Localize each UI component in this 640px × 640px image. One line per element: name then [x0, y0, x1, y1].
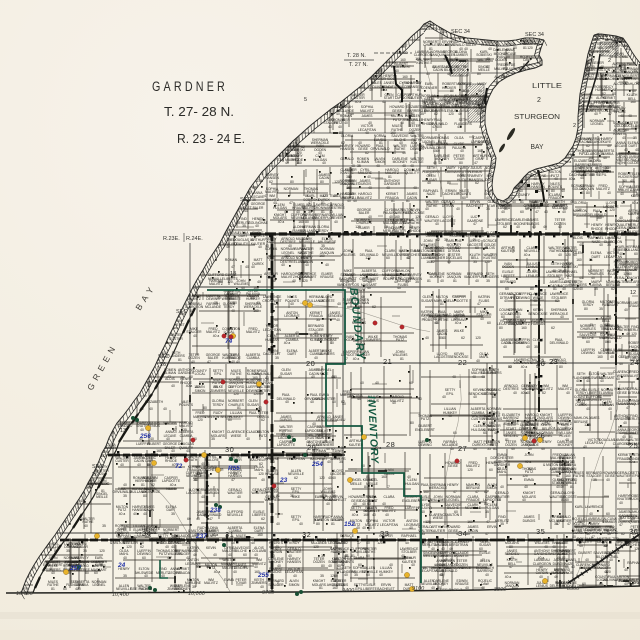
svg-text:ZIMMERS: ZIMMERS: [486, 371, 502, 375]
svg-text:HANSEN: HANSEN: [287, 560, 301, 564]
svg-text:81: 81: [237, 406, 241, 410]
svg-text:T. 27 N.: T. 27 N.: [349, 62, 368, 68]
svg-text:40: 40: [385, 513, 389, 517]
svg-text:35: 35: [420, 112, 424, 116]
svg-text:40: 40: [386, 186, 390, 190]
svg-text:RATHE: RATHE: [189, 458, 201, 462]
svg-text:80: 80: [586, 191, 590, 195]
svg-text:40: 40: [143, 512, 147, 516]
svg-text:PUTZ: PUTZ: [490, 443, 499, 447]
svg-text:40: 40: [457, 125, 461, 129]
svg-text:NILES: NILES: [166, 487, 176, 491]
svg-text:40: 40: [458, 112, 462, 116]
svg-text:40: 40: [328, 440, 332, 444]
svg-text:NAZE: NAZE: [566, 274, 576, 278]
svg-text:ZIMMERS: ZIMMERS: [210, 389, 226, 393]
svg-text:120: 120: [99, 549, 105, 553]
svg-text:EPIL: EPIL: [214, 372, 221, 376]
svg-text:40: 40: [606, 478, 610, 482]
svg-text:40: 40: [366, 541, 370, 545]
svg-text:2: 2: [537, 97, 541, 104]
svg-text:SEC: SEC: [92, 464, 103, 470]
svg-text:40: 40: [460, 149, 464, 153]
svg-text:81: 81: [553, 287, 557, 291]
svg-text:40: 40: [560, 485, 564, 489]
svg-text:MALVITZ: MALVITZ: [360, 109, 374, 113]
svg-text:81: 81: [391, 199, 395, 203]
svg-text:40: 40: [494, 431, 498, 435]
svg-text:35: 35: [354, 573, 358, 577]
svg-text:SEC 34: SEC 34: [451, 29, 470, 35]
svg-text:R. 23 - 24 E.: R. 23 - 24 E.: [177, 131, 245, 146]
svg-text:GOLDE: GOLDE: [627, 161, 639, 165]
svg-text:DESTREE: DESTREE: [503, 387, 519, 391]
svg-text:40: 40: [594, 112, 598, 116]
svg-text:EPIL: EPIL: [599, 173, 606, 177]
svg-text:40: 40: [452, 375, 456, 379]
svg-text:40: 40: [473, 395, 477, 399]
svg-text:ROMAN: ROMAN: [225, 258, 238, 262]
svg-text:62: 62: [269, 180, 273, 184]
svg-text:47: 47: [407, 256, 411, 260]
svg-text:40: 40: [532, 225, 536, 229]
svg-text:SEC 34: SEC 34: [525, 32, 544, 38]
svg-text:40: 40: [451, 222, 455, 226]
svg-text:160: 160: [630, 100, 636, 104]
svg-text:DEWING: DEWING: [516, 296, 530, 300]
svg-text:LENIUS: LENIUS: [526, 274, 539, 278]
svg-text:26: 26: [160, 362, 166, 368]
svg-text:40: 40: [193, 334, 197, 338]
svg-text:MALVITZ: MALVITZ: [204, 581, 218, 585]
svg-text:LAPIDOTTE: LAPIDOTTE: [450, 299, 469, 303]
svg-text:81: 81: [406, 199, 410, 203]
svg-text:40: 40: [501, 210, 505, 214]
svg-text:LACOSTE: LACOSTE: [561, 495, 577, 499]
svg-text:RUTHE: RUTHE: [573, 474, 585, 478]
svg-text:160: 160: [423, 490, 429, 494]
svg-text:LEONEL: LEONEL: [590, 122, 603, 126]
svg-text:62: 62: [461, 336, 465, 340]
svg-text:40: 40: [541, 447, 545, 451]
svg-text:SUGAR: SUGAR: [280, 372, 292, 376]
svg-text:40 a: 40 a: [381, 88, 388, 92]
svg-text:40: 40: [246, 437, 250, 441]
svg-text:40: 40: [274, 318, 278, 322]
svg-text:GEISE: GEISE: [448, 464, 459, 468]
svg-text:40: 40: [554, 575, 558, 579]
svg-text:30: 30: [225, 445, 234, 454]
svg-text:KRAUSE: KRAUSE: [628, 304, 640, 308]
svg-text:40: 40: [123, 556, 127, 560]
svg-text:40: 40: [625, 128, 629, 132]
svg-text:35: 35: [242, 224, 246, 228]
svg-text:60: 60: [462, 196, 466, 200]
svg-text:35: 35: [500, 522, 504, 526]
svg-text:GLORIA: GLORIA: [574, 201, 587, 205]
svg-text:81: 81: [147, 463, 151, 467]
svg-text:40: 40: [556, 485, 560, 489]
svg-text:40: 40: [260, 585, 264, 589]
svg-text:120: 120: [313, 545, 319, 549]
svg-text:26: 26: [536, 359, 545, 368]
svg-text:40: 40: [163, 407, 167, 411]
svg-text:40: 40: [425, 336, 429, 340]
svg-text:2: 2: [573, 123, 576, 129]
svg-text:40: 40: [579, 243, 583, 247]
svg-text:ELMER: ELMER: [358, 226, 370, 230]
svg-text:62: 62: [503, 225, 507, 229]
svg-text:40: 40: [620, 114, 624, 118]
svg-text:DEWING: DEWING: [581, 351, 595, 355]
svg-text:FLANDERS: FLANDERS: [167, 354, 185, 358]
svg-text:35: 35: [487, 447, 491, 451]
svg-text:160: 160: [467, 520, 473, 524]
svg-text:DITRAN: DITRAN: [442, 204, 455, 208]
svg-text:KAUTIER: KAUTIER: [408, 96, 423, 100]
svg-text:40: 40: [440, 279, 444, 283]
svg-text:40: 40: [228, 553, 232, 557]
svg-text:40: 40: [524, 485, 528, 489]
svg-text:SENDIEU: SENDIEU: [331, 418, 346, 422]
svg-text:40: 40: [231, 309, 235, 313]
svg-text:40: 40: [338, 125, 342, 129]
svg-text:TOVAR: TOVAR: [235, 581, 247, 585]
svg-text:40: 40: [586, 379, 590, 383]
svg-text:CLARA: CLARA: [384, 495, 396, 499]
svg-text:40 a: 40 a: [524, 253, 531, 257]
svg-text:28: 28: [386, 440, 395, 449]
svg-text:RAPHAEL: RAPHAEL: [401, 534, 417, 538]
svg-text:80: 80: [316, 522, 320, 526]
svg-text:T. 27- 28 N.: T. 27- 28 N.: [164, 104, 234, 119]
svg-text:LECAPITAN: LECAPITAN: [380, 523, 399, 527]
svg-text:80: 80: [459, 161, 463, 165]
svg-text:40: 40: [299, 522, 303, 526]
svg-text:40: 40: [522, 498, 526, 502]
svg-text:WIESE: WIESE: [433, 516, 444, 520]
svg-text:PUTZ: PUTZ: [159, 552, 168, 556]
svg-text:LACOSTE: LACOSTE: [319, 299, 335, 303]
svg-text:CUMBIA: CUMBIA: [180, 434, 194, 438]
svg-text:MALVITZ: MALVITZ: [358, 196, 372, 200]
svg-text:ORVILWALD: ORVILWALD: [254, 372, 274, 376]
svg-text:40: 40: [285, 161, 289, 165]
svg-text:40: 40: [427, 181, 431, 185]
svg-text:40: 40: [561, 189, 565, 193]
svg-text:40: 40: [328, 564, 332, 568]
svg-text:81: 81: [523, 46, 527, 50]
svg-text:60: 60: [606, 512, 610, 516]
svg-text:34: 34: [458, 529, 467, 538]
svg-text:81: 81: [453, 279, 457, 283]
svg-text:40: 40: [376, 164, 380, 168]
svg-text:40: 40: [340, 446, 344, 450]
svg-text:81: 81: [178, 358, 182, 362]
svg-text:40: 40: [560, 315, 564, 319]
svg-text:40: 40: [133, 512, 137, 516]
svg-text:47: 47: [207, 360, 211, 364]
svg-text:40: 40: [322, 161, 326, 165]
svg-text:62: 62: [542, 391, 546, 395]
svg-text:47: 47: [473, 222, 477, 226]
svg-text:FRAUDE: FRAUDE: [466, 498, 480, 502]
svg-text:GILBERT: GILBERT: [147, 442, 161, 446]
svg-text:160: 160: [319, 254, 325, 258]
svg-text:60: 60: [409, 381, 413, 385]
svg-text:40: 40: [539, 575, 543, 579]
svg-text:35: 35: [594, 287, 598, 291]
svg-text:40: 40: [367, 286, 371, 290]
svg-text:160: 160: [253, 309, 259, 313]
svg-text:60: 60: [492, 395, 496, 399]
svg-text:40: 40: [448, 414, 452, 418]
svg-text:80: 80: [305, 220, 309, 224]
svg-text:JAMES: JAMES: [362, 114, 374, 118]
svg-text:35: 35: [587, 423, 591, 427]
svg-text:120: 120: [484, 260, 490, 264]
svg-text:40: 40: [500, 485, 504, 489]
svg-text:60: 60: [386, 256, 390, 260]
svg-text:80: 80: [203, 406, 207, 410]
svg-text:SUGAR: SUGAR: [421, 299, 433, 303]
svg-text:40: 40: [254, 565, 258, 569]
svg-text:80: 80: [410, 421, 414, 425]
svg-text:35: 35: [275, 356, 279, 360]
svg-text:PUTZ: PUTZ: [396, 338, 405, 342]
svg-text:40: 40: [372, 513, 376, 517]
svg-text:MAHLON: MAHLON: [625, 82, 640, 86]
svg-text:60: 60: [634, 252, 638, 256]
svg-text:40: 40: [628, 114, 632, 118]
svg-text:160: 160: [296, 161, 302, 165]
svg-text:ZIMMERS: ZIMMERS: [430, 109, 446, 113]
svg-text:120: 120: [377, 541, 383, 545]
svg-text:40: 40: [375, 381, 379, 385]
svg-text:KRAUSE: KRAUSE: [320, 275, 334, 279]
svg-text:35: 35: [102, 524, 106, 528]
svg-text:47: 47: [477, 302, 481, 306]
svg-text:LEONEL: LEONEL: [92, 583, 105, 587]
svg-text:60: 60: [505, 287, 509, 291]
svg-text:120: 120: [475, 336, 481, 340]
svg-text:160: 160: [576, 258, 582, 262]
svg-text:60: 60: [243, 553, 247, 557]
svg-text:40: 40: [233, 570, 237, 574]
svg-text:40 a: 40 a: [214, 570, 221, 574]
svg-text:40: 40: [213, 553, 217, 557]
svg-text:40: 40: [583, 445, 587, 449]
svg-text:WALTER: WALTER: [163, 421, 177, 425]
svg-text:WILKE: WILKE: [454, 329, 465, 333]
svg-text:81: 81: [581, 191, 585, 195]
svg-text:40: 40: [137, 463, 141, 467]
svg-text:40 a: 40 a: [505, 575, 512, 579]
svg-text:EMMA: EMMA: [524, 478, 535, 482]
svg-text:40: 40: [623, 179, 627, 183]
svg-text:23: 23: [549, 357, 558, 366]
svg-text:40: 40: [475, 279, 479, 283]
svg-text:31: 31: [225, 530, 234, 539]
svg-text:40: 40: [619, 252, 623, 256]
svg-text:OLGA: OLGA: [454, 136, 464, 140]
svg-text:40: 40: [84, 524, 88, 528]
svg-text:40 a: 40 a: [352, 513, 359, 517]
svg-text:LACOSTE: LACOSTE: [434, 355, 450, 359]
svg-text:33: 33: [380, 529, 389, 538]
svg-text:MALVITZ: MALVITZ: [390, 399, 404, 403]
svg-text:62: 62: [431, 260, 435, 264]
svg-text:80: 80: [477, 72, 481, 76]
svg-text:80: 80: [447, 181, 451, 185]
svg-text:62: 62: [261, 517, 265, 521]
svg-text:40: 40: [186, 449, 190, 453]
svg-text:40: 40: [562, 210, 566, 214]
svg-text:MIKE: MIKE: [292, 495, 301, 499]
svg-text:40: 40: [369, 88, 373, 92]
svg-text:40: 40: [344, 573, 348, 577]
svg-text:40: 40: [576, 379, 580, 383]
svg-text:47: 47: [453, 490, 457, 494]
svg-text:120: 120: [609, 208, 615, 212]
svg-text:40: 40: [562, 287, 566, 291]
svg-text:120: 120: [233, 392, 239, 396]
svg-text:81: 81: [440, 302, 444, 306]
svg-text:GILBERT: GILBERT: [578, 551, 592, 555]
svg-text:BERNARD: BERNARD: [500, 280, 517, 284]
svg-text:SETTY: SETTY: [351, 506, 362, 510]
svg-text:40: 40: [503, 345, 507, 349]
svg-text:JAMES: JAMES: [589, 416, 601, 420]
svg-text:21: 21: [383, 357, 392, 366]
svg-text:TERDY: TERDY: [212, 403, 224, 407]
svg-text:36: 36: [629, 527, 638, 536]
svg-text:ZIMMERS: ZIMMERS: [319, 352, 335, 356]
svg-text:GERALD: GERALD: [340, 157, 354, 161]
svg-text:40 a: 40 a: [119, 512, 126, 516]
svg-text:40: 40: [609, 558, 613, 562]
svg-text:35: 35: [415, 280, 419, 284]
svg-text:SIMON: SIMON: [487, 486, 498, 490]
svg-text:62: 62: [372, 305, 376, 309]
svg-text:HULGAN: HULGAN: [405, 482, 419, 486]
svg-text:120: 120: [467, 468, 473, 472]
svg-text:HUCKER: HUCKER: [562, 552, 577, 556]
svg-text:HANSEN: HANSEN: [340, 147, 354, 151]
svg-text:40: 40: [261, 478, 265, 482]
svg-text:40: 40: [618, 348, 622, 352]
svg-text:R.23E.: R.23E.: [163, 236, 180, 242]
svg-text:35: 35: [196, 565, 200, 569]
svg-text:35: 35: [320, 574, 324, 578]
svg-text:JANQUIN: JANQUIN: [627, 402, 640, 406]
svg-text:DEWING: DEWING: [418, 443, 432, 447]
svg-text:35: 35: [192, 585, 196, 589]
svg-text:ALOIS: ALOIS: [485, 246, 496, 250]
svg-text:80: 80: [530, 287, 534, 291]
svg-text:AHLSWEDE: AHLSWEDE: [142, 490, 161, 494]
svg-text:40 a: 40 a: [525, 460, 532, 464]
svg-text:40: 40: [196, 517, 200, 521]
svg-text:40: 40: [328, 125, 332, 129]
svg-text:RAPHAEL: RAPHAEL: [627, 561, 640, 565]
svg-text:80: 80: [85, 571, 89, 575]
svg-text:40: 40: [554, 177, 558, 181]
svg-text:LEONEL: LEONEL: [446, 498, 459, 502]
svg-text:120: 120: [258, 472, 264, 476]
svg-text:40: 40: [497, 498, 501, 502]
svg-text:13: 13: [120, 428, 126, 434]
svg-text:SETH: SETH: [551, 262, 560, 266]
svg-text:MEILLE: MEILLE: [366, 482, 379, 486]
svg-text:DAW: DAW: [523, 58, 531, 62]
svg-text:40: 40: [258, 245, 262, 249]
svg-text:COUNTY: COUNTY: [516, 193, 531, 197]
svg-text:40: 40: [140, 428, 144, 432]
svg-text:GLEN: GLEN: [619, 355, 629, 359]
svg-text:35: 35: [633, 136, 637, 140]
svg-text:DACHELET: DACHELET: [342, 182, 360, 186]
svg-text:NEUVILLE: NEUVILLE: [465, 506, 482, 510]
svg-text:BAY: BAY: [531, 144, 544, 151]
svg-text:ALOIS: ALOIS: [165, 377, 176, 381]
svg-text:STOLBER: STOLBER: [551, 296, 567, 300]
svg-text:40: 40: [586, 407, 590, 411]
svg-text:40: 40: [167, 556, 171, 560]
svg-text:120: 120: [319, 476, 325, 480]
svg-text:40: 40: [442, 395, 446, 399]
svg-text:40: 40: [608, 407, 612, 411]
svg-text:40: 40: [543, 225, 547, 229]
svg-text:62: 62: [611, 287, 615, 291]
svg-text:MALVITZ: MALVITZ: [209, 282, 223, 286]
svg-text:40: 40: [311, 375, 315, 379]
svg-text:SIMON: SIMON: [195, 389, 206, 393]
svg-text:18: 18: [230, 271, 236, 277]
svg-text:80: 80: [321, 564, 325, 568]
svg-text:120: 120: [565, 253, 571, 257]
svg-text:40: 40: [171, 449, 175, 453]
svg-text:62: 62: [555, 299, 559, 303]
svg-text:ELISLE: ELISLE: [479, 551, 491, 555]
svg-text:35: 35: [534, 345, 538, 349]
svg-text:NEUVILLE: NEUVILLE: [362, 570, 379, 574]
svg-text:160: 160: [477, 149, 483, 153]
svg-text:40: 40: [166, 437, 170, 441]
svg-text:40: 40: [194, 478, 198, 482]
svg-text:40: 40: [344, 121, 348, 125]
svg-text:WIESE: WIESE: [231, 434, 242, 438]
svg-text:DITRAN: DITRAN: [456, 543, 469, 547]
svg-text:ELMER: ELMER: [345, 168, 357, 172]
svg-text:35: 35: [123, 574, 127, 578]
svg-text:40: 40: [258, 406, 262, 410]
svg-text:160: 160: [363, 513, 369, 517]
svg-text:40: 40: [607, 191, 611, 195]
svg-text:40: 40: [368, 526, 372, 530]
svg-text:35: 35: [123, 494, 127, 498]
svg-text:40: 40: [607, 144, 611, 148]
svg-text:LAVINA: LAVINA: [445, 170, 457, 174]
svg-text:40: 40: [572, 535, 576, 539]
svg-text:60: 60: [63, 587, 67, 591]
svg-text:81: 81: [589, 258, 593, 262]
svg-text:KARL: KARL: [575, 505, 584, 509]
svg-text:47: 47: [556, 522, 560, 526]
svg-text:40: 40: [600, 379, 604, 383]
svg-text:LECAPITAN: LECAPITAN: [287, 457, 306, 461]
svg-text:NEUVILLE: NEUVILLE: [586, 398, 603, 402]
